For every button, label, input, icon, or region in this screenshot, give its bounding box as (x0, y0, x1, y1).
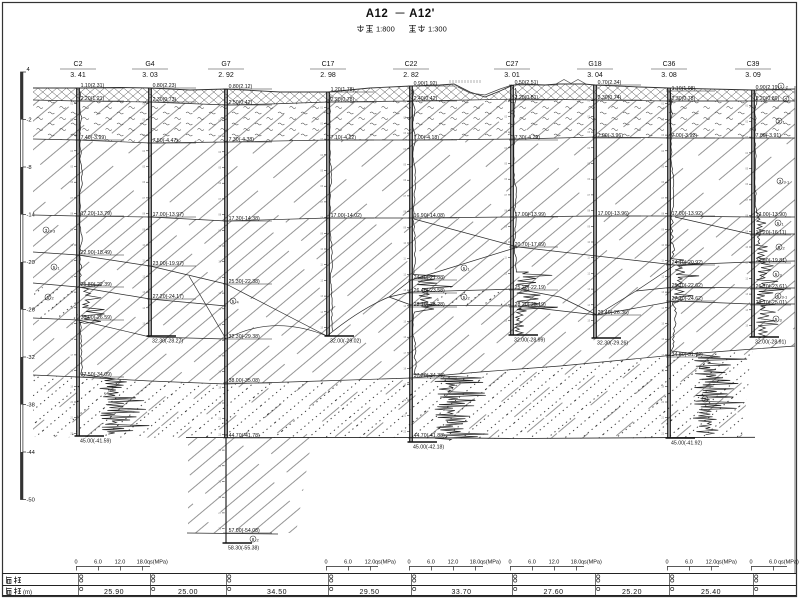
svg-text:0: 0 (749, 560, 752, 566)
svg-text:7.00(-3.92): 7.00(-3.92) (672, 133, 698, 139)
svg-text:C17: C17 (322, 61, 335, 68)
svg-text:2: 2 (468, 296, 470, 301)
svg-text:2.40(0.42): 2.40(0.42) (414, 96, 438, 102)
svg-text:qs(MPa): qs(MPa) (147, 560, 168, 566)
svg-text:-38: -38 (27, 403, 35, 409)
svg-text:7.00(-3.96): 7.00(-3.96) (598, 133, 624, 139)
svg-text:2. 92: 2. 92 (218, 72, 234, 79)
svg-text:57.00(-54.08): 57.00(-54.08) (229, 528, 260, 534)
svg-text:1: 1 (468, 267, 470, 272)
svg-text:27.20(-24.17): 27.20(-24.17) (153, 294, 184, 300)
svg-text:5: 5 (778, 245, 781, 250)
svg-text:25.20(-22.19): 25.20(-22.19) (515, 285, 546, 291)
svg-text:17.00(-13.97): 17.00(-13.97) (153, 212, 184, 218)
svg-text:23.00(-19.97): 23.00(-19.97) (153, 261, 184, 267)
svg-text:6.0: 6.0 (94, 560, 102, 566)
svg-text:5: 5 (775, 317, 778, 322)
svg-text:qs(MPa): qs(MPa) (716, 560, 737, 566)
svg-text:18.0: 18.0 (571, 560, 582, 566)
svg-text:3. 03: 3. 03 (142, 72, 158, 79)
svg-text:32.00(-28.99): 32.00(-28.99) (514, 338, 545, 344)
svg-text:38.00(-35.08): 38.00(-35.08) (229, 378, 260, 384)
svg-text:1: 1 (783, 120, 785, 125)
svg-text:3. 08: 3. 08 (661, 72, 677, 79)
svg-text:32.30(-29.38): 32.30(-29.38) (229, 334, 260, 340)
svg-text:1: 1 (58, 266, 60, 271)
svg-text:C36: C36 (663, 61, 676, 68)
svg-text:-2: -2 (785, 85, 788, 90)
svg-text:5: 5 (463, 266, 466, 271)
svg-text:7.30(-4.29): 7.30(-4.29) (515, 135, 541, 141)
svg-text:0.90(2.19): 0.90(2.19) (756, 85, 780, 91)
svg-text:-32: -32 (27, 355, 35, 361)
svg-text:32.00(-29.02): 32.00(-29.02) (330, 339, 361, 345)
svg-text:3-1: 3-1 (782, 295, 788, 300)
svg-text:18.0: 18.0 (470, 560, 481, 566)
svg-text:17.30(-14.38): 17.30(-14.38) (229, 216, 260, 222)
svg-text:12.0: 12.0 (365, 560, 376, 566)
svg-text:20.70(-17.69): 20.70(-17.69) (515, 242, 546, 248)
svg-text:8: 8 (252, 537, 255, 542)
svg-text:32.00(-28.91): 32.00(-28.91) (755, 340, 786, 346)
svg-text:30.00(-26.59): 30.00(-26.59) (81, 315, 112, 321)
svg-text:45.00(-42.18): 45.00(-42.18) (413, 445, 444, 451)
svg-text:5: 5 (463, 295, 466, 300)
svg-text:7.10(-4.12): 7.10(-4.12) (331, 135, 357, 141)
svg-text:0.90(1.92): 0.90(1.92) (414, 81, 438, 87)
svg-text:2.50(0.42): 2.50(0.42) (229, 100, 253, 106)
svg-text:34.50: 34.50 (267, 589, 287, 596)
svg-text:-50: -50 (27, 498, 35, 504)
svg-text:7.30(-4.38): 7.30(-4.38) (229, 137, 255, 143)
svg-text:17.00(-13.99): 17.00(-13.99) (515, 212, 546, 218)
svg-text:7: 7 (704, 397, 707, 402)
svg-text:1.10(1.98): 1.10(1.98) (672, 86, 696, 92)
svg-text:17.00(-13.92): 17.00(-13.92) (672, 211, 703, 217)
svg-text:7.50(-4.47): 7.50(-4.47) (153, 138, 179, 144)
svg-text:qs(MPa): qs(MPa) (581, 560, 602, 566)
svg-text:1.20(1.78): 1.20(1.78) (331, 87, 355, 93)
svg-text:1: 1 (780, 84, 783, 89)
svg-text:32.30(-29.26): 32.30(-29.26) (597, 341, 628, 347)
svg-text:12.0: 12.0 (706, 560, 717, 566)
svg-text:C22: C22 (405, 61, 418, 68)
svg-text:22.90(-18.49): 22.90(-18.49) (81, 250, 112, 256)
svg-text:0.50(2.51): 0.50(2.51) (515, 80, 539, 86)
svg-text:7.40(-3.99): 7.40(-3.99) (81, 135, 107, 141)
svg-text:2: 2 (52, 296, 54, 301)
svg-text:7.00(-4.18): 7.00(-4.18) (414, 135, 440, 141)
svg-text:A12: A12 (366, 8, 389, 20)
svg-text:-26: -26 (27, 308, 35, 314)
svg-text:3. 09: 3. 09 (745, 72, 761, 79)
svg-text:0: 0 (508, 560, 511, 566)
svg-text:3: 3 (780, 273, 782, 278)
svg-text:2.20(1.21): 2.20(1.21) (81, 96, 105, 102)
svg-text:C27: C27 (506, 61, 519, 68)
svg-text:0.80(2.12): 0.80(2.12) (229, 84, 253, 90)
svg-text:27.60: 27.60 (543, 589, 563, 596)
svg-text:25.70(-22.62): 25.70(-22.62) (672, 283, 703, 289)
svg-text:3-1: 3-1 (784, 180, 790, 185)
svg-text:45.00(-41.59): 45.00(-41.59) (80, 439, 111, 445)
svg-text:25.20: 25.20 (622, 589, 642, 596)
svg-text:16.90(-14.08): 16.90(-14.08) (414, 213, 445, 219)
svg-text:qs(MPa): qs(MPa) (375, 560, 396, 566)
svg-text:1:300: 1:300 (428, 25, 447, 34)
svg-text:33.70: 33.70 (451, 589, 471, 596)
svg-text:27.70(-24.62): 27.70(-24.62) (672, 296, 703, 302)
svg-text:3: 3 (779, 179, 782, 184)
svg-text:32.30(-28.27): 32.30(-28.27) (152, 339, 183, 345)
svg-text:6.0: 6.0 (769, 560, 777, 566)
svg-text:58.30(-55.38): 58.30(-55.38) (228, 546, 259, 552)
svg-text:5: 5 (777, 294, 780, 299)
svg-text:G18: G18 (588, 61, 601, 68)
svg-text:25.90: 25.90 (104, 589, 124, 596)
svg-text:-2: -2 (27, 118, 32, 124)
svg-text:G4: G4 (145, 61, 154, 68)
svg-text:6.0: 6.0 (528, 560, 536, 566)
svg-text:5: 5 (777, 221, 780, 226)
svg-text:12.0: 12.0 (549, 560, 560, 566)
svg-text:qs(MPa): qs(MPa) (778, 560, 799, 566)
svg-text:3: 3 (780, 318, 782, 323)
svg-text:2: 2 (778, 119, 781, 124)
svg-text:2. 98: 2. 98 (320, 72, 336, 79)
svg-text:29.50: 29.50 (359, 589, 379, 596)
svg-text:0: 0 (74, 560, 77, 566)
svg-text:2.30(0.73): 2.30(0.73) (153, 97, 177, 103)
svg-text:-20: -20 (27, 260, 35, 266)
svg-text:17.00(-13.96): 17.00(-13.96) (598, 211, 629, 217)
svg-text:25.30(-22.38): 25.30(-22.38) (229, 279, 260, 285)
svg-text:qs(MPa): qs(MPa) (480, 560, 501, 566)
svg-text:3. 01: 3. 01 (504, 72, 520, 79)
svg-text:2: 2 (783, 246, 785, 251)
svg-text:25.40: 25.40 (701, 589, 721, 596)
svg-text:7.00(-3.91): 7.00(-3.91) (756, 133, 782, 139)
svg-text:6.0: 6.0 (427, 560, 435, 566)
svg-text:1: 1 (782, 222, 784, 227)
svg-text:6.0: 6.0 (685, 560, 693, 566)
svg-text:-14: -14 (27, 213, 36, 219)
svg-text:3. 41: 3. 41 (70, 72, 86, 79)
svg-text:G7: G7 (221, 61, 230, 68)
svg-text:1:800: 1:800 (376, 25, 395, 34)
svg-text:45.00(-41.92): 45.00(-41.92) (671, 441, 702, 447)
svg-text:(m): (m) (23, 590, 32, 596)
svg-text:2: 2 (257, 538, 259, 543)
svg-text:6.0: 6.0 (344, 560, 352, 566)
svg-text:29.40(-26.36): 29.40(-26.36) (598, 310, 629, 316)
svg-text:2.20(0.81): 2.20(0.81) (515, 95, 539, 101)
svg-text:2.30(0.74): 2.30(0.74) (598, 95, 622, 101)
svg-text:5: 5 (53, 265, 56, 270)
svg-text:12.0: 12.0 (115, 560, 126, 566)
svg-text:C2: C2 (74, 61, 83, 68)
svg-text:0: 0 (407, 560, 410, 566)
svg-text:0: 0 (324, 560, 327, 566)
svg-text:3-3: 3-3 (50, 229, 56, 234)
svg-text:44.70(-41.78): 44.70(-41.78) (229, 433, 260, 439)
svg-text:0: 0 (665, 560, 668, 566)
svg-text:25.00: 25.00 (178, 589, 198, 596)
svg-text:—: — (396, 8, 405, 18)
svg-text:12.0: 12.0 (448, 560, 459, 566)
svg-text:0.70(2.34): 0.70(2.34) (598, 80, 622, 86)
svg-text:-8: -8 (27, 165, 32, 171)
svg-text:0.80(2.23): 0.80(2.23) (153, 83, 177, 89)
svg-text:5: 5 (775, 272, 778, 277)
svg-text:C39: C39 (747, 61, 760, 68)
svg-text:A12': A12' (409, 8, 435, 20)
svg-text:1.10(2.31): 1.10(2.31) (81, 83, 105, 89)
svg-text:3. 04: 3. 04 (587, 72, 603, 79)
svg-text:3: 3 (45, 228, 48, 233)
svg-text:18.0: 18.0 (137, 560, 148, 566)
svg-text:17.00(-14.02): 17.00(-14.02) (331, 213, 362, 219)
svg-text:-44: -44 (27, 450, 36, 456)
svg-text:2.20(0.78): 2.20(0.78) (331, 97, 355, 103)
svg-text:26.40(-23.58): 26.40(-23.58) (414, 288, 445, 294)
svg-text:2.20(0.89): 2.20(0.89) (756, 96, 780, 102)
svg-text:2. 82: 2. 82 (403, 72, 419, 79)
svg-text:2: 2 (785, 97, 788, 102)
svg-text:5: 5 (47, 295, 50, 300)
svg-text:5: 5 (232, 299, 235, 304)
svg-text:17.20(-13.79): 17.20(-13.79) (81, 211, 112, 217)
svg-text:2.30(0.78): 2.30(0.78) (672, 96, 696, 102)
